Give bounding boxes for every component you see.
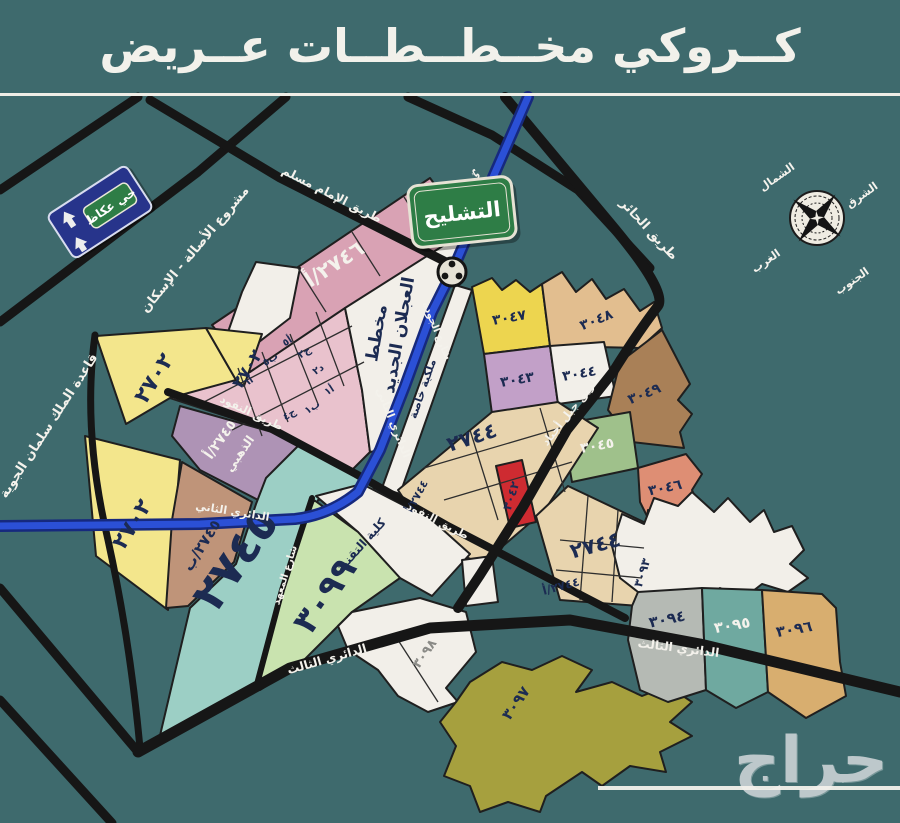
sketch-map-canvas: ٢٧٤٦/أ ٢٧٠٢ ٢٧٠٢ ٢٧٠٢ ٢٧٤٥/أ الذهبي ٢٧٤٥…: [0, 0, 900, 823]
compass-outer: [790, 191, 844, 245]
map-screenshot: كــروكي مخــطــطــات عــريض: [0, 0, 900, 823]
header-divider: [0, 93, 900, 96]
roundabout-dot: [449, 261, 456, 268]
roundabout-icon: [438, 258, 466, 286]
watermark-line: [598, 786, 900, 790]
tashleeh-sign: التشليح: [407, 175, 521, 253]
roundabout-dot: [456, 273, 463, 280]
roundabout-dot: [442, 273, 449, 280]
page-title: كــروكي مخــطــطــات عــريض: [0, 0, 900, 90]
